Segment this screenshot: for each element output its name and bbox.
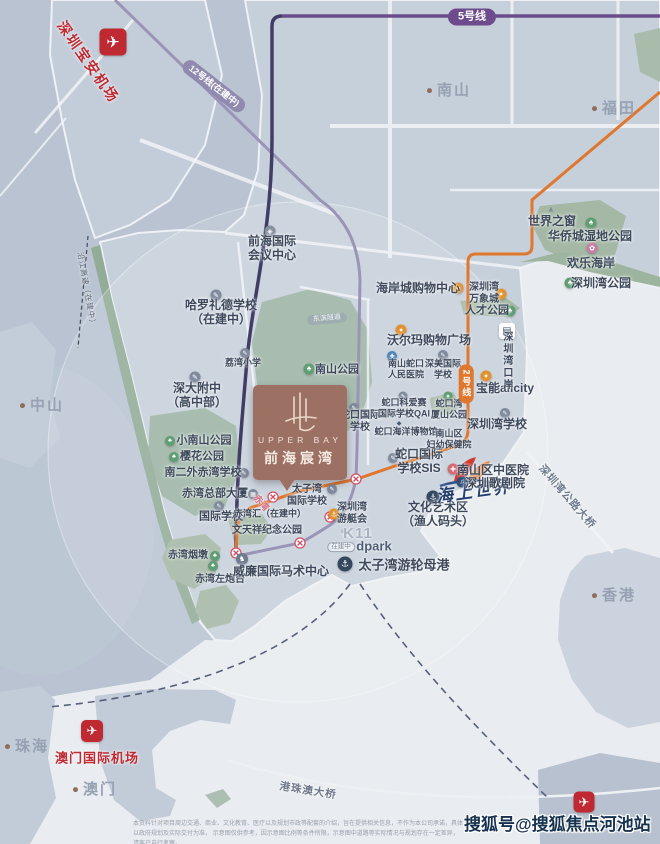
project-logo-cn: 前海宸湾 bbox=[264, 448, 336, 468]
project-upper-bay-card: UPPER BAY 前海宸湾 bbox=[253, 385, 347, 480]
project-card-pointer bbox=[279, 479, 295, 491]
project-logo-en: UPPER BAY bbox=[258, 435, 342, 445]
upper-bay-logo-mark bbox=[278, 391, 322, 433]
sohu-watermark: 搜狐号@搜狐焦点河池站 bbox=[464, 810, 651, 835]
map-disclaimer: 本资料针对项目周边交通、商业、文化教育、医疗以及规划市政等配套的介绍，旨在提供相… bbox=[133, 820, 463, 844]
shenzhen-qianhai-location-map: ✈✈✈▲♣✿♣♣✦✦✦✦◈✎✎✎♣♣♣✎▦✎♣♣▦♞✎⚓⚓⚓✎✎✎♣◆✎✎✚✚♫… bbox=[0, 0, 660, 844]
